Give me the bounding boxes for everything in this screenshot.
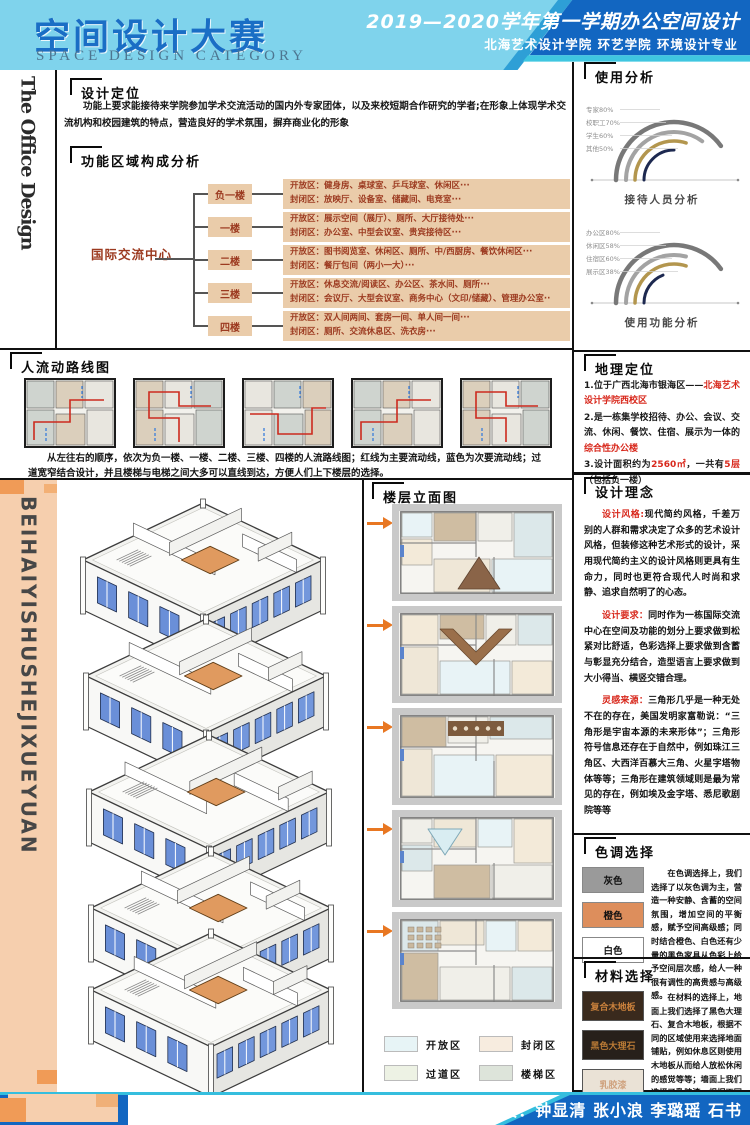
poster-title-en: SPACE DESIGN CATEGORY: [36, 48, 307, 65]
circulation-section: 人流动路线图 从左往右的顺序，依次为负一楼、一楼、二楼、三楼、四楼的人流路线图；…: [0, 348, 572, 480]
orange-arrow-icon: [367, 828, 384, 831]
materials-title: 材料选择: [582, 961, 655, 985]
floorplan-render-f1: [392, 810, 562, 907]
functional-analysis-title: 功能区域构成分析: [68, 146, 201, 170]
right-sidebar: 使用分析 专家80%校职工70%学生60%其他50% 接待人员分析 办公区80%…: [572, 62, 750, 1092]
circulation-caption: 从左往右的顺序，依次为负一楼、一楼、二楼、三楼、四楼的人流路线图；红线为主要流动…: [28, 452, 550, 481]
usage-analysis-title: 使用分析: [582, 62, 655, 86]
header-semester: 2019—2020学年第一学期办公空间设计: [366, 7, 740, 34]
tree-row-f1: 一楼 开放区：展示空间（展厅）、厕所、大厅接待处···封闭区：办公室、中型会议室…: [193, 212, 570, 242]
circulation-title: 人流动路线图: [8, 352, 111, 376]
svg-text:展示区38%: 展示区38%: [586, 268, 620, 276]
legend-item-closed: 封闭区: [479, 1036, 560, 1052]
floorplan-render-f3: [392, 606, 562, 703]
floorplan-thumbnail-b1: [24, 378, 116, 448]
members-info: 组员：钟显清 张小浪 李璐瑶 石书: [484, 1097, 742, 1121]
swatch-black-marble: 黑色大理石: [582, 1030, 644, 1060]
tree-row-b1: 负一楼 开放区：健身房、桌球室、乒乓球室、休闲区···封闭区：放映厅、设备室、储…: [193, 179, 570, 209]
concept-section: 设计理念 设计风格:现代简约风格，千差万别的人群和需求决定了众多的艺术设计风格，…: [574, 475, 750, 833]
geo-section: 地理定位 1.位于广西北海市银海区——北海艺术设计学院西校区 2.是一栋集学校招…: [574, 350, 750, 475]
vertical-title-pinyin-text: BEIHAIYISHUSHEJIXUEYUAN: [17, 496, 41, 855]
legend-item-stairs: 楼梯区: [479, 1065, 560, 1081]
arc-chart-visitors-caption: 接待人员分析: [582, 192, 742, 207]
arc-chart-visitors: 专家80%校职工70%学生60%其他50%: [584, 90, 742, 194]
svg-text:办公区80%: 办公区80%: [586, 228, 620, 237]
orange-accent-square: [0, 480, 24, 494]
legend-swatch-corridor: [384, 1065, 418, 1081]
tree-connector: [155, 258, 193, 260]
footer: 班级：环本1713班 组员：钟显清 张小浪 李璐瑶 石书: [0, 1092, 750, 1125]
class-info: 班级：环本1713班: [308, 1097, 459, 1121]
tree-row-f3: 三楼 开放区：休息交流/阅读区、办公区、茶水间、厕所···封闭区：会议厅、大型会…: [193, 278, 570, 308]
orange-arrow-icon: [367, 930, 384, 933]
floorplan-thumbnail-f3: [351, 378, 443, 448]
legend-swatch-open: [384, 1036, 418, 1052]
concept-inspiration: 灵感来源：三角形几乎是一种无处不在的存在，美国发明家富勒说：“三角形是宇宙本源的…: [584, 694, 740, 819]
geo-line-2: 2.是一栋集学校招待、办公、会议、交流、休闲、餐饮、住宿、展示为一体的综合性办公…: [584, 411, 740, 457]
orange-arrow-icon: [367, 522, 384, 525]
materials-section: 材料选择 复合木地板 黑色大理石 乳胶漆 在材料的选择上，地面上我们选择了黑色大…: [574, 957, 750, 1089]
floorplan-render-f2: [392, 708, 562, 805]
swatch-orange: 橙色: [582, 902, 644, 928]
tree-row-f2: 二楼 开放区：图书阅览室、休闲区、厕所、中/西厨房、餐饮休闲区···封闭区：餐厅…: [193, 245, 570, 275]
svg-text:校职工70%: 校职工70%: [586, 118, 620, 127]
tree-root-label: 国际交流中心: [91, 244, 209, 263]
svg-text:学生60%: 学生60%: [586, 131, 613, 140]
floorplan-thumbnail-f2: [242, 378, 334, 448]
axonometric-building-drawing: [57, 480, 362, 1092]
legend-item-open: 开放区: [384, 1036, 465, 1052]
zone-legend: 开放区 封闭区 过道区 楼梯区: [384, 1036, 560, 1081]
circulation-floorplans: [24, 378, 552, 448]
tree-row-f4: 四楼 开放区：双人间两间、套房一间、单人间一间···封闭区：厕所、交流休息区、洗…: [193, 311, 570, 341]
functional-analysis-tree: 国际交流中心 负一楼 开放区：健身房、桌球室、乒乓球室、休闲区···封闭区：放映…: [36, 178, 572, 350]
header-school: 北海艺术设计学院 环艺学院 环境设计专业: [484, 34, 738, 53]
elevation-title: 楼层立面图: [370, 482, 458, 506]
vertical-title-pinyin: BEIHAIYISHUSHEJIXUEYUAN: [0, 480, 57, 1092]
concept-requirement: 设计要求：同时作为一栋国际交流中心在空间及功能的划分上要求做到松紧对比舒适，色彩…: [584, 609, 740, 687]
geo-title: 地理定位: [582, 354, 655, 378]
color-scheme-title: 色调选择: [582, 837, 655, 861]
svg-text:其他50%: 其他50%: [586, 144, 613, 153]
floorplan-thumbnail-f4: [460, 378, 552, 448]
concept-style: 设计风格:现代简约风格，千差万别的人群和需求决定了众多的艺术设计风格，但装修这种…: [584, 508, 740, 602]
usage-analysis-section: 使用分析 专家80%校职工70%学生60%其他50% 接待人员分析 办公区80%…: [574, 62, 750, 350]
header: 空间设计大赛 SPACE DESIGN CATEGORY 2019—2020学年…: [0, 0, 750, 70]
orange-arrow-icon: [367, 726, 384, 729]
swatch-gray: 灰色: [582, 867, 644, 893]
concept-title: 设计理念: [582, 477, 655, 501]
swatch-wood-floor: 复合木地板: [582, 991, 644, 1021]
footer-orange-square: [96, 1094, 118, 1107]
svg-text:休闲区58%: 休闲区58%: [586, 241, 620, 250]
floorplan-render-f4: [392, 504, 562, 601]
orange-accent-square: [37, 1070, 57, 1084]
floorplan-thumbnail-f1: [133, 378, 225, 448]
svg-text:住宿区60%: 住宿区60%: [586, 254, 620, 263]
legend-swatch-stairs: [479, 1065, 513, 1081]
axonometric-building: [57, 480, 362, 1092]
arc-chart-functions-caption: 使用功能分析: [582, 315, 742, 330]
legend-swatch-closed: [479, 1036, 513, 1052]
geo-line-1: 1.位于广西北海市银海区——北海艺术设计学院西校区: [584, 379, 740, 410]
legend-item-corridor: 过道区: [384, 1065, 465, 1081]
floorplan-render-b1: [392, 912, 562, 1009]
svg-text:专家80%: 专家80%: [586, 105, 613, 114]
poster: 空间设计大赛 SPACE DESIGN CATEGORY 2019—2020学年…: [0, 0, 750, 1125]
footer-orange-square: [0, 1098, 26, 1122]
color-scheme-section: 色调选择 灰色 橙色 白色 在色调选择上，我们选择了以灰色调为主，营造一种安静、…: [574, 833, 750, 957]
design-positioning-body: 功能上要求能接待来学院参加学术交流活动的国内外专家团体，以及来校短期合作研究的学…: [64, 99, 566, 132]
orange-arrow-icon: [367, 624, 384, 627]
orange-accent-square: [44, 484, 57, 493]
arc-chart-functions: 办公区80%休闲区58%住宿区60%展示区38%: [584, 213, 742, 317]
elevation-column: 楼层立面图 开放区 封闭区 过道区 楼梯区: [362, 480, 572, 1092]
